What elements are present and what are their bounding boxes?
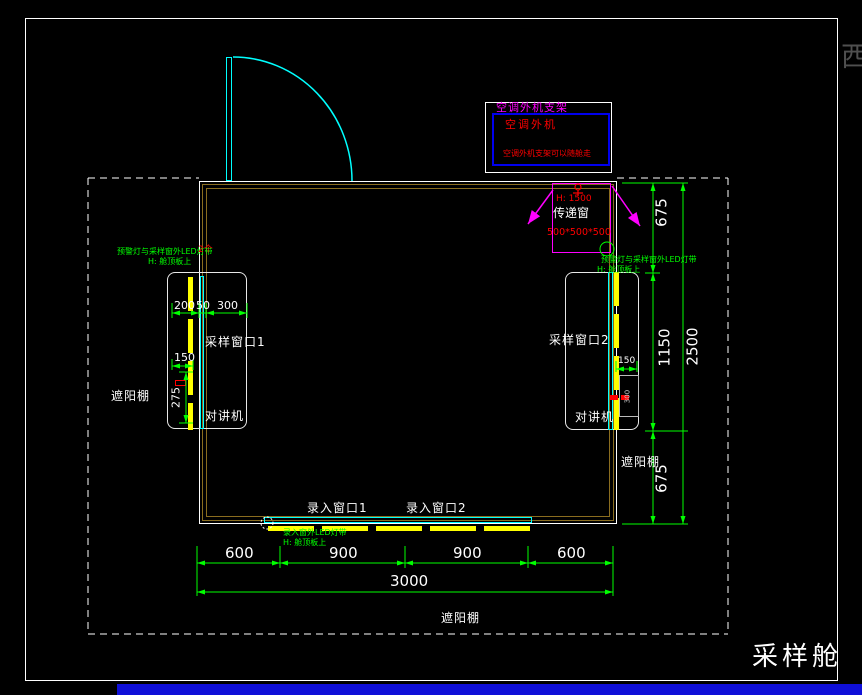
pipe-circle [600,242,614,256]
dim-left-275: 275 [171,381,182,415]
intercom-left-label: 对讲机 [205,410,244,422]
transfer-window-leader-arrows [528,186,640,226]
canopy-bottom-label: 遮阳棚 [441,612,480,624]
linework-layer [0,0,862,695]
canopy-left-label: 遮阳棚 [111,390,150,402]
cad-canvas: 西 空调外机支架 空调外机 空调外机支架可以随舱走 H: 1500 传递窗 50… [0,0,862,695]
dimension-lines [172,183,688,596]
dim-bottom-900b: 900 [453,546,482,561]
dim-right-675a: 675 [655,193,670,233]
sample-window-1-label: 采样窗口1 [205,336,266,348]
bottom-led-note-line2: H: 舱顶板上 [283,539,326,547]
entry-window-1-label: 录入窗口1 [307,502,368,514]
right-led-note-line1: 预警灯与采样窗外LED灯带 [601,256,697,264]
entry-window-2-label: 录入窗口2 [406,502,467,514]
power-symbol-icon [573,184,583,196]
drawing-title: 采样舱 [752,644,842,670]
dim-right-total: 2500 [686,324,701,370]
left-led-note-line2: H: 舱顶板上 [148,258,191,266]
intercom-right-label: 对讲机 [575,411,614,423]
bottom-led-note-line1: 录入窗外LED灯带 [283,529,347,537]
dim-right-window-300: 300 [625,386,632,408]
right-led-note-line2: H: 舱顶板上 [597,266,640,274]
dim-right-675b: 675 [655,459,670,499]
dim-right-1150: 1150 [658,325,673,371]
dim-left-50: 50 [196,300,210,311]
left-led-note-qty: 2个 [198,246,213,255]
door-arc [233,57,352,181]
grommet-circle [261,517,273,529]
dim-bottom-900a: 900 [329,546,358,561]
dim-left-150: 150 [174,352,195,363]
dim-right-window-150: 150 [618,357,635,366]
dim-left-300: 300 [217,300,238,311]
dim-bottom-600a: 600 [225,546,254,561]
sample-window-2-label: 采样窗口2 [549,334,610,346]
dim-bottom-total: 3000 [390,574,428,589]
dim-bottom-600b: 600 [557,546,586,561]
dim-left-200: 200 [174,300,195,311]
